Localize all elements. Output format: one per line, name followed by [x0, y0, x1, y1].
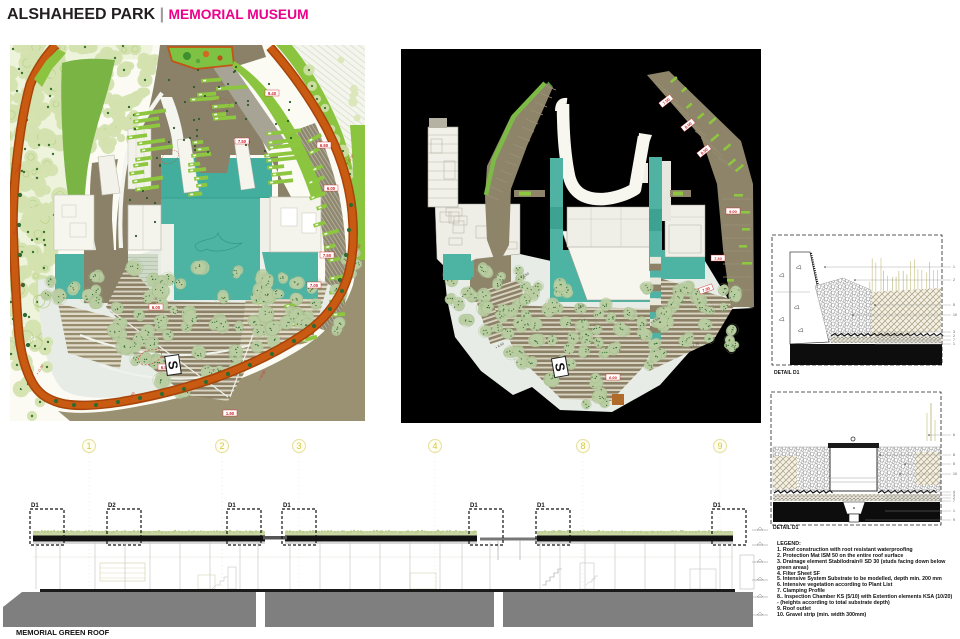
svg-text:4: 4: [432, 441, 437, 451]
svg-text:7.30: 7.30: [714, 256, 723, 261]
svg-text:D1: D1: [283, 503, 291, 509]
svg-text:DETAIL D1: DETAIL D1: [774, 370, 800, 376]
svg-text:D2: D2: [108, 503, 116, 509]
svg-text:8: 8: [580, 441, 585, 451]
svg-text:8: 8: [953, 453, 955, 457]
svg-text:6.00: 6.00: [327, 186, 336, 191]
svg-text:9: 9: [717, 441, 722, 451]
svg-text:7.00: 7.00: [310, 283, 319, 288]
svg-text:D1: D1: [713, 503, 721, 509]
svg-text:D1: D1: [470, 503, 478, 509]
svg-text:7: 7: [953, 499, 955, 503]
svg-text:7.50: 7.50: [238, 139, 247, 144]
svg-text:3: 3: [296, 441, 301, 451]
svg-text:D1: D1: [228, 503, 236, 509]
svg-text:1: 1: [953, 342, 955, 346]
svg-text:2: 2: [219, 441, 224, 451]
svg-text:DETAIL D1: DETAIL D1: [773, 525, 799, 531]
svg-text:10: 10: [953, 472, 957, 476]
svg-text:D1: D1: [537, 503, 545, 509]
svg-text:9: 9: [953, 518, 955, 522]
svg-text:2: 2: [953, 278, 955, 282]
svg-text:5: 5: [953, 303, 955, 307]
svg-text:1.90: 1.90: [226, 411, 235, 416]
svg-text:5: 5: [953, 462, 955, 466]
svg-text:7.50: 7.50: [323, 253, 332, 258]
svg-text:6.50: 6.50: [320, 143, 329, 148]
svg-text:6: 6: [953, 433, 955, 437]
svg-text:1: 1: [953, 509, 955, 513]
svg-text:1: 1: [953, 265, 955, 269]
svg-text:9.40: 9.40: [268, 91, 277, 96]
svg-text:10: 10: [953, 313, 957, 317]
svg-text:1: 1: [86, 441, 91, 451]
svg-text:6.00: 6.00: [609, 375, 618, 380]
svg-text:9.00: 9.00: [729, 209, 738, 214]
svg-text:D1: D1: [31, 503, 39, 509]
svg-text:MEMORIAL GREEN ROOF: MEMORIAL GREEN ROOF: [16, 628, 110, 637]
svg-text:6.00: 6.00: [152, 305, 161, 310]
